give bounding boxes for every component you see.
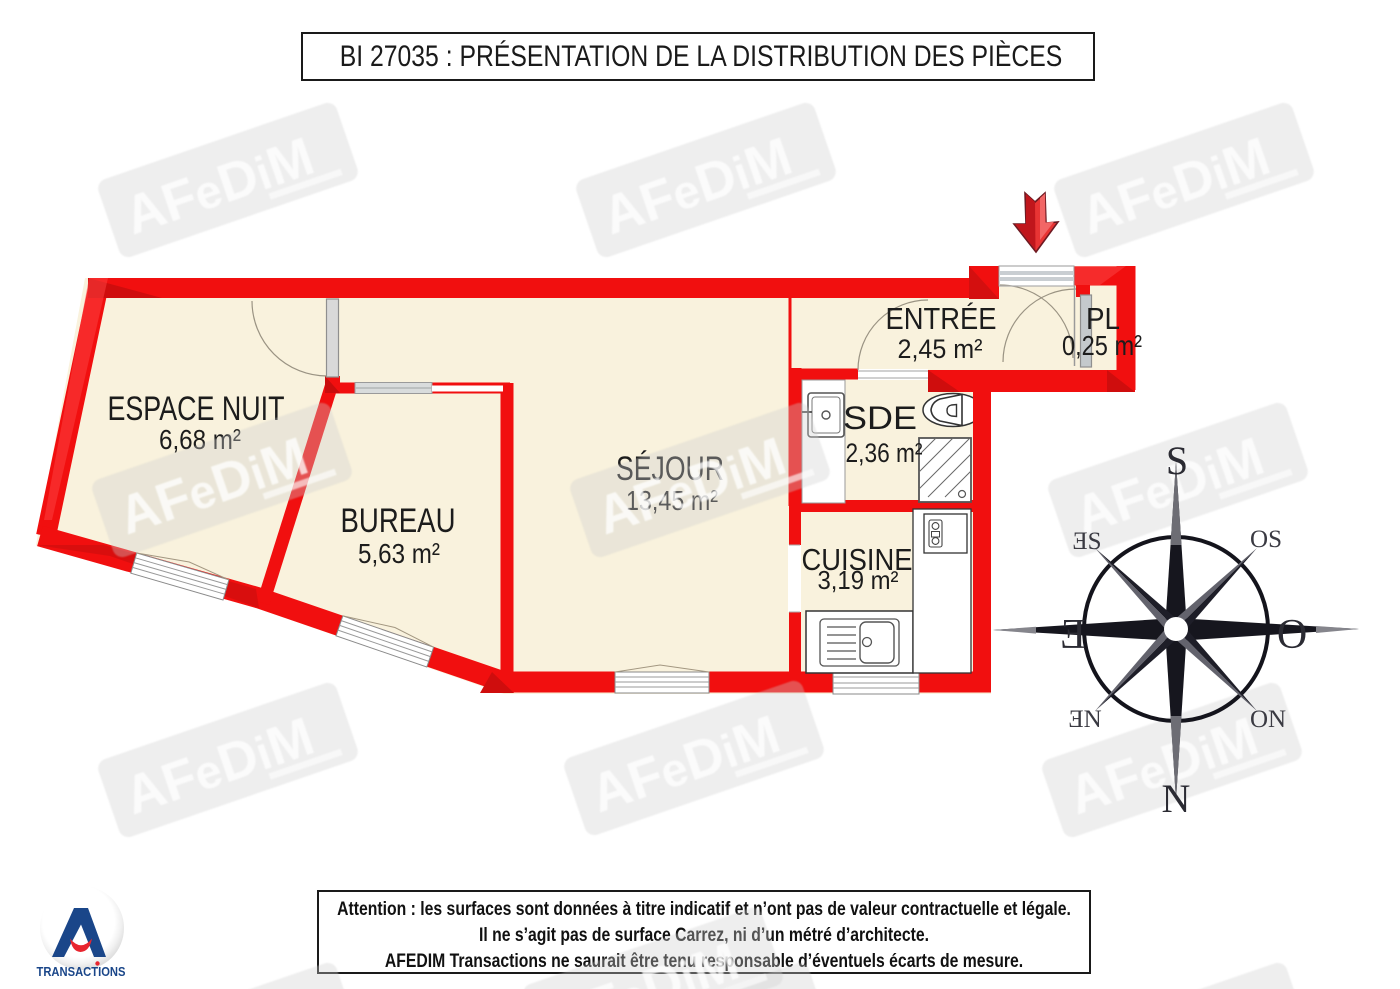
svg-text:ƎN: ƎN xyxy=(1068,706,1101,733)
svg-text:ƎS: ƎS xyxy=(1072,528,1101,555)
svg-text:N: N xyxy=(1162,776,1191,821)
svg-text:ON: ON xyxy=(1250,706,1286,733)
svg-text:E: E xyxy=(1060,612,1086,658)
svg-text:S: S xyxy=(1166,438,1188,483)
svg-text:O: O xyxy=(1277,612,1307,658)
svg-text:OS: OS xyxy=(1250,526,1282,553)
